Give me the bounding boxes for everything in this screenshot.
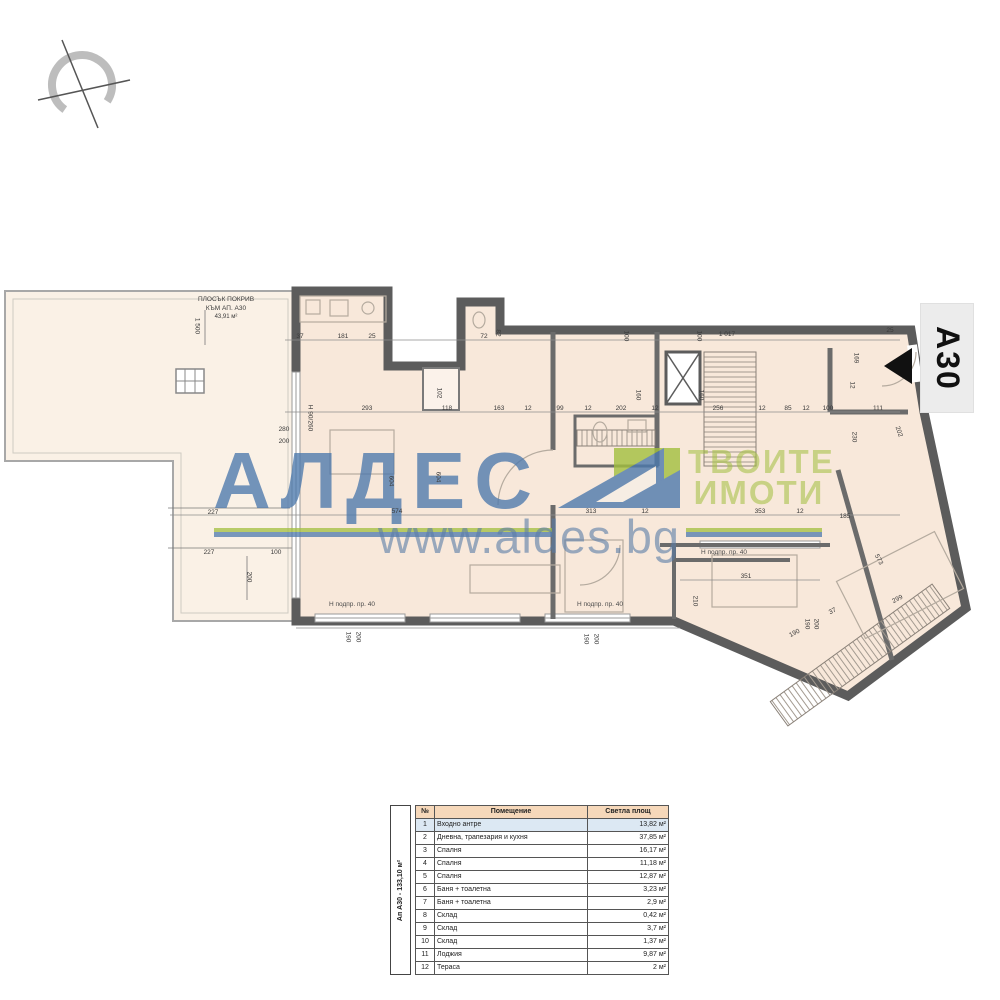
dimension-label: 12 [524, 406, 531, 413]
table-cell: Баня + тоалетна [435, 884, 588, 897]
table-cell: 3,7 м² [588, 923, 669, 936]
dimension-label: 227 [204, 550, 215, 557]
table-cell: 16,17 м² [588, 845, 669, 858]
table-cell: 5 [416, 871, 435, 884]
dimension-label: 25 [886, 328, 893, 335]
dimension-label: 210 [691, 596, 698, 607]
watermark-logo-icon [556, 446, 684, 510]
table-cell: 12 [416, 962, 435, 975]
table-row: 11Лоджия9,87 м² [416, 949, 669, 962]
dimension-label: 190 [582, 634, 589, 645]
table-row: 1Входно антре13,82 м² [416, 819, 669, 832]
table-row: 2Дневна, трапезария и кухня37,85 м² [416, 832, 669, 845]
table-cell: 2 м² [588, 962, 669, 975]
table-cell: 9 [416, 923, 435, 936]
dimension-label: 604 [387, 476, 394, 487]
dimension-label: 169 [852, 353, 859, 364]
table-header-cell: Помещение [435, 806, 588, 819]
watermark-tagline-line1: ТВОИТЕ [688, 446, 830, 477]
dimension-label: 118 [442, 406, 452, 413]
dimension-label: 100 [622, 331, 629, 342]
dimension-label: 604 [434, 472, 441, 483]
dimension-label: 12 [848, 381, 855, 388]
table-row: 6Баня + тоалетна3,23 м² [416, 884, 669, 897]
table-cell: 6 [416, 884, 435, 897]
dimension-label: 100 [823, 406, 834, 413]
table-cell: Склад [435, 936, 588, 949]
dimension-label: 1 500 [193, 318, 200, 334]
watermark-url: www.aldes.bg [378, 513, 680, 560]
table-cell: Спалня [435, 871, 588, 884]
dimension-label: 200 [592, 634, 599, 645]
dimension-label: 353 [755, 509, 766, 516]
dimension-label: 200 [812, 619, 819, 630]
roof-drain-icon [176, 369, 204, 393]
table-cell: 2,9 м² [588, 897, 669, 910]
table-row: 10Склад1,37 м² [416, 936, 669, 949]
watermark-tagline-line2: ИМОТИ [688, 477, 830, 508]
table-cell: 0,42 м² [588, 910, 669, 923]
table-row: 3Спалня16,17 м² [416, 845, 669, 858]
roof-note-line3: 43,91 м² [176, 313, 276, 322]
dimension-label: 100 [695, 331, 702, 342]
dimension-label: 200 [279, 439, 290, 446]
table-row: 7Баня + тоалетна2,9 м² [416, 897, 669, 910]
table-cell: 9,87 м² [588, 949, 669, 962]
dimension-label: 25 [368, 334, 375, 341]
sill-height-note: Н подпр. пр. 40 [329, 602, 375, 609]
table-cell: 13,82 м² [588, 819, 669, 832]
table-cell: 10 [416, 936, 435, 949]
roof-note: ПЛОСЪК ПОКРИВ КЪМ АП. А30 43,91 м² [176, 295, 276, 322]
table-row: 12Тераса2 м² [416, 962, 669, 975]
table-cell: Тераса [435, 962, 588, 975]
dimension-label: 280 [279, 427, 290, 434]
compass-icon [38, 40, 130, 128]
table-cell: Баня + тоалетна [435, 897, 588, 910]
table-cell: Склад [435, 910, 588, 923]
dimension-label: 163 [494, 406, 505, 413]
sill-height-note: Н подпр. пр. 40 [577, 602, 623, 609]
dimension-label: 190 [803, 619, 810, 630]
watermark-tagline: ТВОИТЕ ИМОТИ [688, 446, 830, 508]
roof-note-line2: КЪМ АП. А30 [176, 304, 276, 313]
table-cell: 2 [416, 832, 435, 845]
dimension-label: 351 [741, 574, 752, 581]
dimension-label: 82 [494, 329, 501, 336]
dimension-label: 230 [850, 432, 857, 443]
floor-plan-page: АЛДЕС ТВОИТЕ ИМОТИ www.aldes.bg ПЛОСЪК П… [0, 0, 1000, 1000]
table-row: 9Склад3,7 м² [416, 923, 669, 936]
dimension-label: 12 [796, 509, 803, 516]
unit-label-text: А30 [929, 326, 966, 391]
apartment-total-label: Ап А30 - 133,10 м² [390, 805, 411, 975]
table-cell: 11 [416, 949, 435, 962]
table-cell: 7 [416, 897, 435, 910]
dimension-label: 100 [271, 550, 282, 557]
dimension-label: 111 [873, 406, 883, 413]
table-row: 5Спалня12,87 м² [416, 871, 669, 884]
dimension-label: 293 [362, 406, 373, 413]
dimension-label: 12 [802, 406, 809, 413]
table-cell: 1,37 м² [588, 936, 669, 949]
table-cell: 4 [416, 858, 435, 871]
table-cell: 11,18 м² [588, 858, 669, 871]
table-header-cell: № [416, 806, 435, 819]
table-cell: Спалня [435, 845, 588, 858]
table-cell: 37,85 м² [588, 832, 669, 845]
dimension-label: 160 [634, 390, 641, 401]
dimension-label: 202 [616, 406, 627, 413]
table-cell: Склад [435, 923, 588, 936]
table-row: 8Склад0,42 м² [416, 910, 669, 923]
dimension-label: 12 [641, 509, 648, 516]
dimension-label: 102 [435, 388, 442, 399]
dimension-label: 85 [784, 406, 791, 413]
room-table: №ПомещениеСветла площ 1Входно антре13,82… [415, 805, 669, 975]
dimension-label: 12 [651, 406, 658, 413]
dimension-label: 190 [344, 632, 351, 643]
table-cell: Входно антре [435, 819, 588, 832]
table-cell: 1 [416, 819, 435, 832]
table-cell: Дневна, трапезария и кухня [435, 832, 588, 845]
table-header-row: №ПомещениеСветла площ [416, 806, 669, 819]
roof-note-line1: ПЛОСЪК ПОКРИВ [176, 295, 276, 304]
dimension-label: 256 [713, 406, 724, 413]
sill-height-note: Н подпр. пр. 40 [701, 550, 747, 557]
dimension-label: Н 90/260 [306, 405, 313, 431]
watermark-brand: АЛДЕС [213, 441, 541, 521]
dimension-label: 37 [296, 334, 303, 341]
table-cell: 12,87 м² [588, 871, 669, 884]
dimension-label: 12 [584, 406, 591, 413]
table-row: 4Спалня11,18 м² [416, 858, 669, 871]
dimension-label: 313 [586, 509, 597, 516]
unit-label: А30 [920, 303, 974, 413]
dimension-label: 185 [840, 514, 851, 521]
table-cell: 3,23 м² [588, 884, 669, 897]
dimension-label: 99 [556, 406, 563, 413]
dimension-label: 72 [480, 334, 487, 341]
table-header-cell: Светла площ [588, 806, 669, 819]
dimension-label: 12 [758, 406, 765, 413]
dimension-label: 160 [697, 390, 704, 401]
dimension-label: 200 [245, 572, 252, 583]
table-cell: Лоджия [435, 949, 588, 962]
dimension-label: 227 [208, 510, 219, 517]
dimension-label: 200 [354, 632, 361, 643]
table-cell: 8 [416, 910, 435, 923]
dimension-label: 1 017 [719, 332, 735, 339]
room-table-block: Ап А30 - 133,10 м² №ПомещениеСветла площ… [390, 805, 669, 975]
dimension-label: 574 [392, 509, 403, 516]
table-cell: Спалня [435, 858, 588, 871]
dimension-label: 181 [338, 334, 349, 341]
elevator [666, 352, 700, 404]
table-cell: 3 [416, 845, 435, 858]
